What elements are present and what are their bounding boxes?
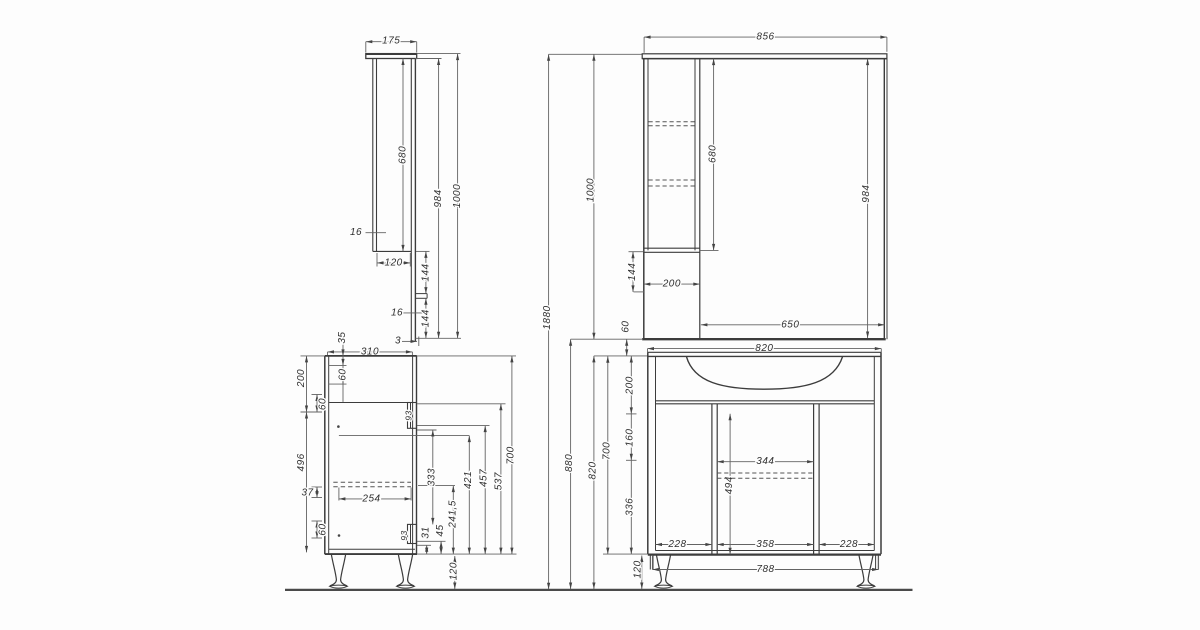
svg-text:984: 984: [861, 185, 872, 203]
svg-text:144: 144: [420, 263, 431, 281]
svg-text:1000: 1000: [452, 184, 463, 208]
svg-text:200: 200: [624, 376, 635, 395]
svg-text:700: 700: [601, 442, 612, 460]
svg-text:241,5: 241,5: [447, 500, 458, 529]
svg-text:228: 228: [839, 539, 858, 550]
svg-text:35: 35: [337, 332, 348, 344]
svg-text:494: 494: [724, 476, 735, 494]
svg-text:120: 120: [385, 257, 403, 268]
svg-text:60: 60: [317, 523, 328, 535]
svg-text:120: 120: [632, 560, 643, 578]
svg-text:421: 421: [463, 471, 474, 489]
svg-text:31: 31: [421, 526, 432, 538]
svg-text:228: 228: [667, 539, 686, 550]
svg-text:254: 254: [361, 493, 380, 504]
svg-text:144: 144: [420, 309, 431, 327]
svg-text:144: 144: [627, 263, 638, 281]
svg-text:200: 200: [662, 279, 681, 290]
svg-text:60: 60: [338, 369, 349, 381]
svg-text:200: 200: [296, 369, 307, 388]
svg-text:1000: 1000: [585, 178, 596, 202]
svg-text:496: 496: [296, 453, 307, 471]
svg-text:336: 336: [624, 498, 635, 516]
svg-text:680: 680: [398, 146, 409, 164]
svg-text:175: 175: [382, 35, 400, 46]
svg-text:344: 344: [756, 456, 774, 467]
svg-text:16: 16: [350, 227, 362, 238]
svg-text:333: 333: [427, 468, 438, 486]
svg-text:16: 16: [391, 307, 403, 318]
svg-text:788: 788: [756, 564, 774, 575]
svg-text:60: 60: [621, 321, 632, 333]
svg-text:856: 856: [756, 32, 774, 43]
svg-text:120: 120: [448, 562, 459, 580]
svg-text:984: 984: [433, 189, 444, 207]
svg-text:93: 93: [404, 410, 414, 420]
svg-text:37: 37: [301, 488, 313, 499]
svg-text:457: 457: [479, 469, 490, 487]
svg-text:680: 680: [708, 145, 719, 163]
svg-text:60: 60: [317, 398, 328, 410]
svg-text:358: 358: [756, 539, 774, 550]
svg-text:93: 93: [399, 530, 409, 540]
svg-text:880: 880: [564, 454, 575, 472]
svg-text:537: 537: [493, 472, 504, 490]
svg-text:650: 650: [781, 319, 799, 330]
svg-text:160: 160: [624, 429, 635, 447]
svg-text:3: 3: [395, 336, 401, 347]
svg-text:820: 820: [587, 461, 598, 479]
svg-text:45: 45: [435, 524, 446, 536]
svg-text:700: 700: [506, 446, 517, 464]
svg-text:1880: 1880: [542, 305, 553, 329]
